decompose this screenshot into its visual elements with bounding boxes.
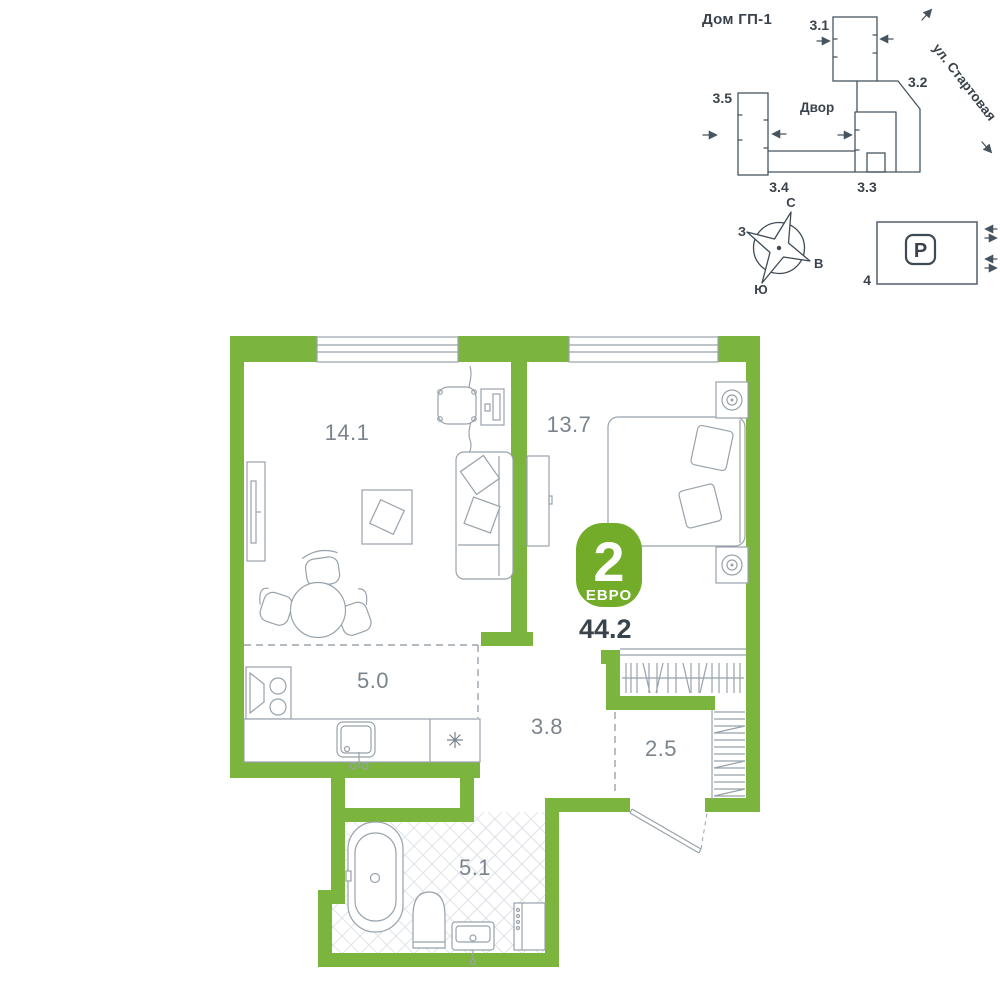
kitchen-area-label: 5.0 xyxy=(357,668,389,693)
building-3-4-label: 3.4 xyxy=(769,179,789,195)
apartment-type-badge: 2 ЕВРО xyxy=(576,523,642,607)
parking-arrow-icons xyxy=(985,229,997,268)
wardrobe-area-label: 2.5 xyxy=(645,736,677,761)
compass-south-label: Ю xyxy=(754,282,767,297)
stove xyxy=(246,667,291,719)
entrance-door xyxy=(630,809,707,853)
floor-plan: 14.1 13.7 5.0 3.8 2.5 5.1 2 ЕВРО 44.2 xyxy=(230,336,760,967)
compass-icon: С З В Ю xyxy=(738,195,824,297)
building-3-3-hatched-block xyxy=(867,153,885,172)
desk xyxy=(481,389,504,425)
parking-sign: P 4 xyxy=(863,222,997,288)
total-area-label: 44.2 xyxy=(579,614,632,644)
street-label: ул. Стартовая xyxy=(930,41,999,124)
nightstand-lamp xyxy=(716,382,748,418)
bedroom-area-label: 13.7 xyxy=(547,412,592,437)
desk-chair xyxy=(438,387,477,424)
bathtub xyxy=(346,822,403,932)
living-room-area-label: 14.1 xyxy=(325,420,370,445)
building-3-1-notches xyxy=(833,35,877,57)
tv-stand xyxy=(247,462,265,561)
building-3-5-outline xyxy=(738,93,768,175)
apartment-type-label: ЕВРО xyxy=(586,587,632,604)
site-plan-title: Дом ГП-1 xyxy=(702,11,772,28)
window xyxy=(569,337,718,362)
building-3-4-outline xyxy=(768,151,855,172)
tv-dresser xyxy=(527,456,552,546)
ottoman xyxy=(362,490,412,544)
building-3-1-label: 3.1 xyxy=(810,17,830,33)
door-swing-dashed-line xyxy=(701,813,707,849)
living-room-furniture xyxy=(247,366,513,638)
sofa xyxy=(456,452,513,579)
building-3-3-label: 3.3 xyxy=(857,179,877,195)
building-3-2-label: 3.2 xyxy=(908,74,928,90)
compass-west-label: З xyxy=(738,224,746,239)
parking-number-label: 4 xyxy=(863,272,871,288)
entrance-arrow-icons xyxy=(703,39,893,135)
building-3-2-3-3-outline xyxy=(855,81,920,172)
dining-table xyxy=(257,548,374,637)
floorplan-image: Дом ГП-1 3.1 3.2 3.3 3.4 3.5 Двор ул. Ст… xyxy=(0,0,1000,1000)
site-plan: Дом ГП-1 3.1 3.2 3.3 3.4 3.5 Двор ул. Ст… xyxy=(702,10,999,195)
building-3-5-label: 3.5 xyxy=(713,90,733,106)
window xyxy=(317,337,458,362)
wardrobe-shelving xyxy=(712,710,745,800)
rooms-count: 2 xyxy=(593,530,624,593)
compass-north-label: С xyxy=(786,195,796,210)
hallway-area-label: 3.8 xyxy=(531,714,563,739)
building-3-1-outline xyxy=(833,17,877,81)
bedroom-closet xyxy=(620,649,746,693)
compass-east-label: В xyxy=(814,256,823,271)
building-3-5-notches xyxy=(738,115,768,148)
toilet xyxy=(413,892,445,948)
bathroom-area-label: 5.1 xyxy=(459,855,491,880)
floorplan-page: Дом ГП-1 3.1 3.2 3.3 3.4 3.5 Двор ул. Ст… xyxy=(0,0,1000,1000)
nightstand-lamp xyxy=(716,547,748,583)
washing-machine xyxy=(514,903,545,950)
courtyard-label: Двор xyxy=(800,100,834,115)
parking-symbol: P xyxy=(914,240,927,262)
